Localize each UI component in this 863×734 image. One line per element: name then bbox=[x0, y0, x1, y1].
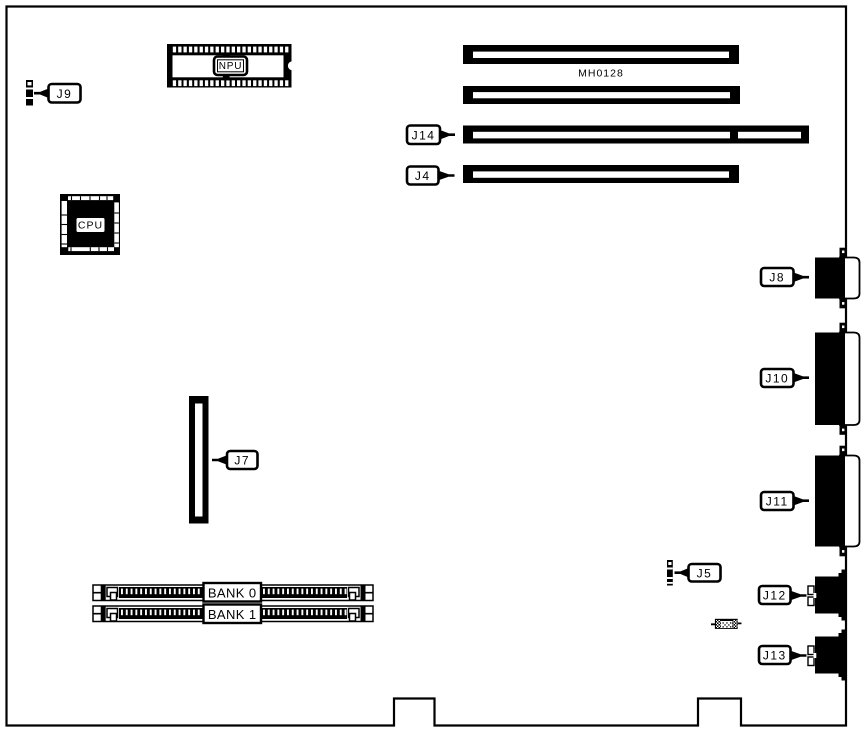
svg-text:BANK 0: BANK 0 bbox=[208, 586, 257, 601]
svg-text:MH0128: MH0128 bbox=[578, 68, 624, 80]
svg-text:J4: J4 bbox=[415, 169, 431, 183]
svg-text:J7: J7 bbox=[234, 454, 250, 468]
svg-text:J10: J10 bbox=[765, 372, 789, 386]
svg-text:J14: J14 bbox=[412, 128, 436, 142]
svg-text:J8: J8 bbox=[769, 271, 785, 285]
svg-text:J13: J13 bbox=[763, 649, 787, 663]
svg-text:NPU: NPU bbox=[219, 61, 243, 72]
svg-text:J9: J9 bbox=[57, 87, 73, 101]
svg-text:BANK 1: BANK 1 bbox=[208, 607, 257, 622]
svg-text:J12: J12 bbox=[763, 589, 787, 603]
svg-text:J5: J5 bbox=[697, 566, 713, 580]
svg-text:CPU: CPU bbox=[78, 220, 103, 232]
svg-text:J11: J11 bbox=[766, 495, 789, 509]
